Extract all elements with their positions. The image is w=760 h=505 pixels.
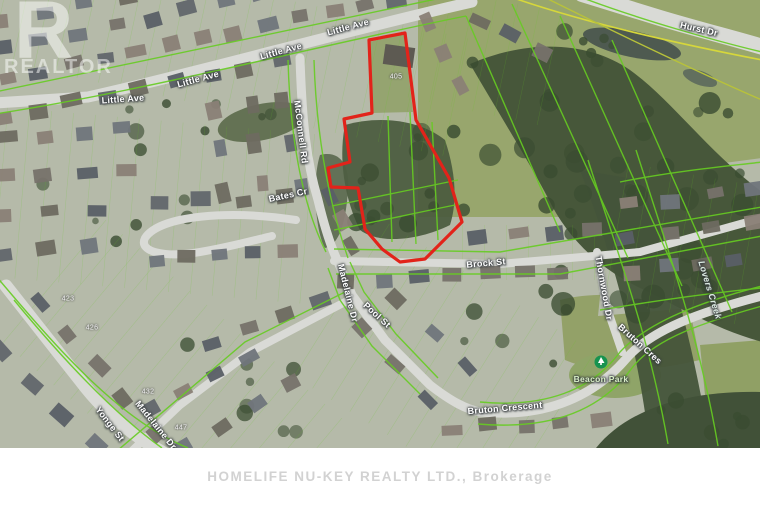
- listing-map-screenshot: Little AveLittle AveLittle AveLittle Ave…: [0, 0, 760, 505]
- satellite-map-canvas: Little AveLittle AveLittle AveLittle Ave…: [0, 0, 760, 448]
- housenumber-label-hn-405: 405: [390, 74, 403, 81]
- housenumber-label-hn-426: 426: [86, 325, 99, 332]
- park-marker-icon: [595, 356, 608, 369]
- brokerage-name: HOMELIFE NU-KEY REALTY LTD., Brokerage: [207, 469, 553, 484]
- housenumber-label-hn-432: 432: [142, 389, 155, 396]
- park-label-beacon-park: Beacon Park: [574, 374, 629, 384]
- footer-band: HOMELIFE NU-KEY REALTY LTD., Brokerage: [0, 448, 760, 505]
- housenumber-label-hn-423: 423: [62, 296, 75, 303]
- housenumber-label-hn-447: 447: [175, 425, 188, 432]
- map-imagery: [0, 0, 760, 448]
